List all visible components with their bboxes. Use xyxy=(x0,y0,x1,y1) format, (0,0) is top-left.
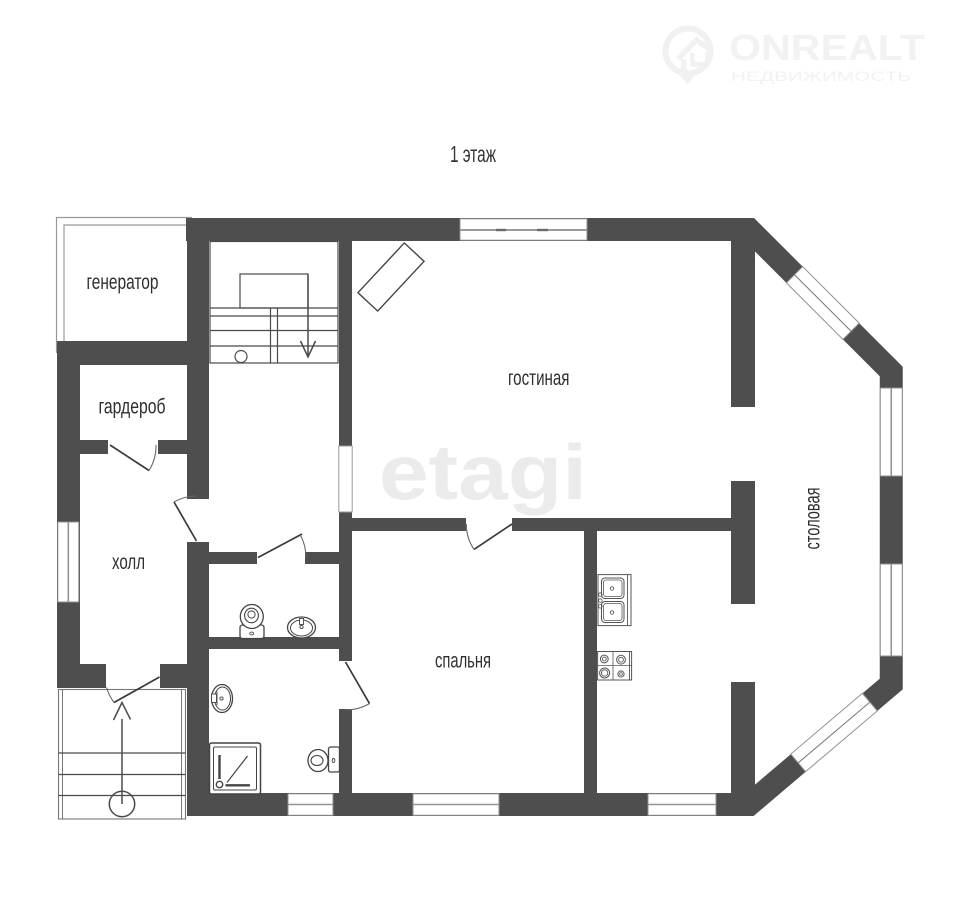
svg-text:гардероб: гардероб xyxy=(99,396,166,419)
svg-text:etagi: etagi xyxy=(379,428,587,516)
svg-text:холл: холл xyxy=(112,551,145,574)
svg-text:ONREALT: ONREALT xyxy=(729,27,925,68)
svg-text:НЕДВИЖИМОСТЬ: НЕДВИЖИМОСТЬ xyxy=(731,69,911,84)
svg-text:1 этаж: 1 этаж xyxy=(450,141,496,167)
svg-text:столовая: столовая xyxy=(802,488,825,550)
svg-text:генератор: генератор xyxy=(87,271,159,294)
svg-text:спальня: спальня xyxy=(435,650,491,673)
svg-text:гостиная: гостиная xyxy=(508,367,570,390)
